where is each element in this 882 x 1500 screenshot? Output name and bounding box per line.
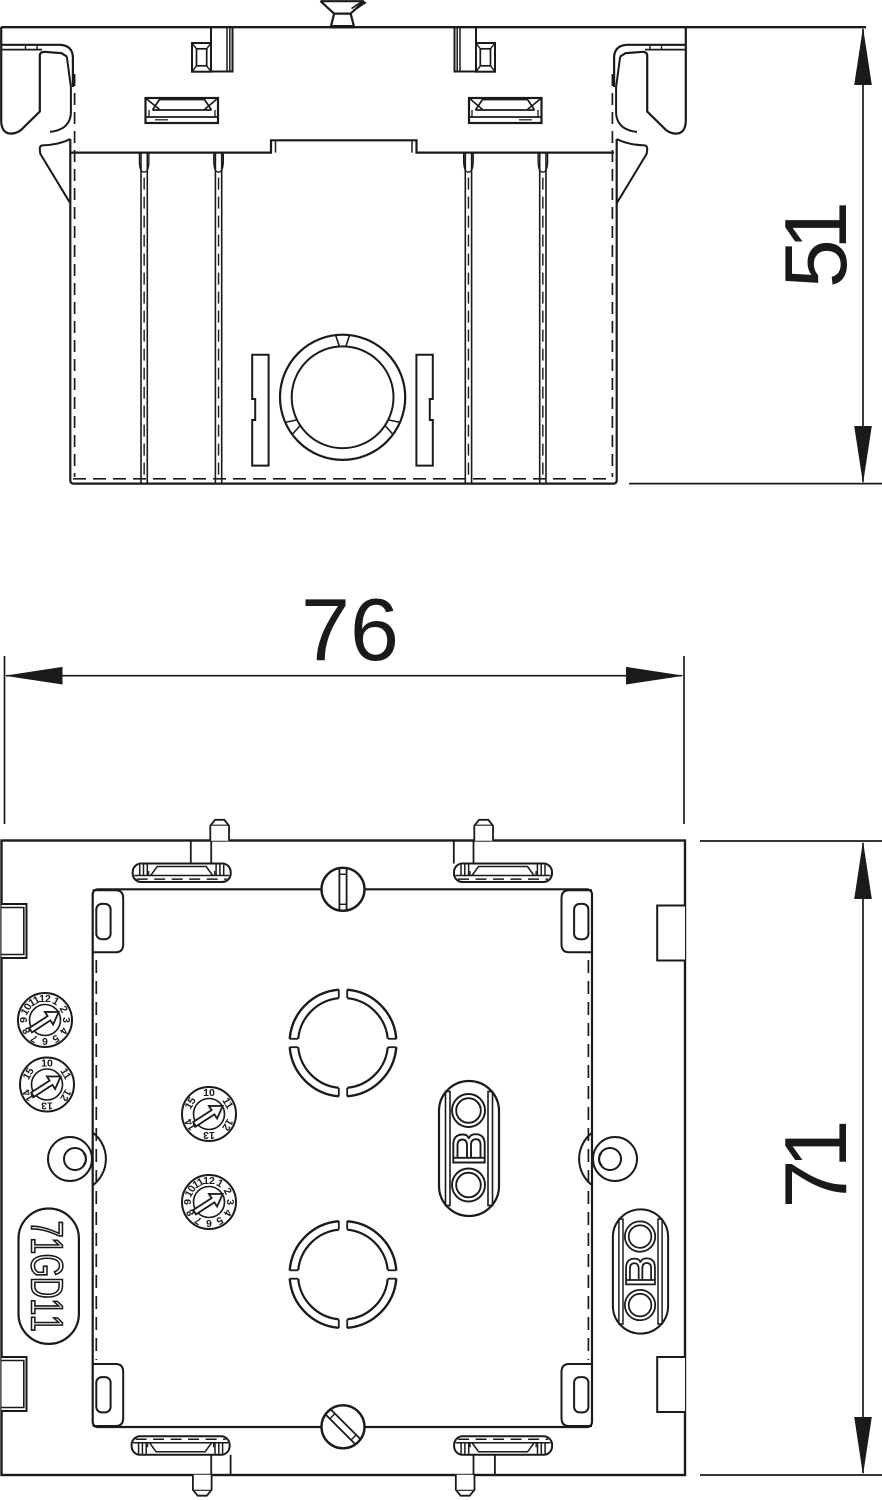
svg-text:1: 1 — [766, 201, 865, 250]
svg-text:10: 10 — [203, 1087, 215, 1099]
svg-text:6: 6 — [206, 1217, 212, 1229]
svg-text:13: 13 — [203, 1129, 215, 1141]
svg-text:3: 3 — [224, 1199, 236, 1205]
svg-text:3: 3 — [60, 1017, 72, 1023]
svg-text:6: 6 — [42, 1035, 48, 1047]
svg-text:76: 76 — [301, 580, 399, 679]
svg-text:13: 13 — [41, 1100, 53, 1112]
svg-text:10: 10 — [41, 1057, 53, 1069]
svg-text:1: 1 — [766, 1120, 865, 1169]
